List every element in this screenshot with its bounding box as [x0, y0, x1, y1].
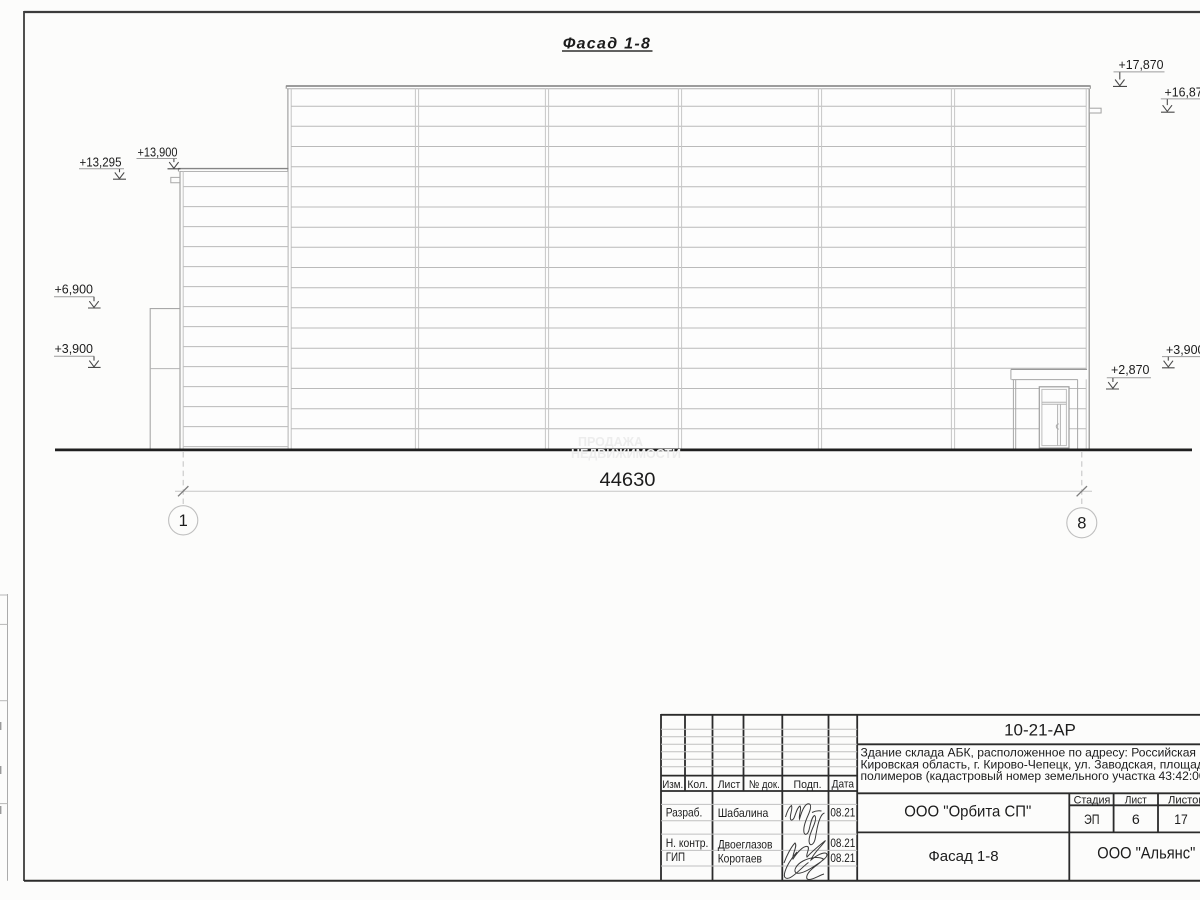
- svg-text:8: 8: [1077, 515, 1086, 533]
- svg-text:НЕДВИЖИМОСТИ: НЕДВИЖИМОСТИ: [571, 447, 681, 461]
- svg-text:44630: 44630: [600, 470, 656, 491]
- svg-text:Шабалина: Шабалина: [718, 807, 769, 820]
- svg-text:+17,870: +17,870: [1119, 57, 1164, 72]
- svg-text:Разраб.: Разраб.: [666, 807, 703, 820]
- svg-text:+13,900: +13,900: [138, 144, 178, 159]
- svg-text:Фасад 1-8: Фасад 1-8: [928, 848, 998, 865]
- svg-text:+2,870: +2,870: [1111, 362, 1150, 377]
- svg-text:08.21: 08.21: [830, 807, 855, 820]
- svg-text:полимеров (кадастровый номер з: полимеров (кадастровый номер земельного …: [861, 769, 1200, 783]
- svg-text:+13,295: +13,295: [80, 154, 122, 169]
- svg-text:+3,900: +3,900: [55, 341, 94, 356]
- svg-text:08.21: 08.21: [830, 837, 855, 850]
- svg-text:+3,900: +3,900: [1166, 342, 1200, 357]
- svg-text:Дата: Дата: [832, 779, 855, 791]
- svg-text:+6,900: +6,900: [55, 282, 94, 297]
- svg-text:ООО "Альянс": ООО "Альянс": [1097, 844, 1195, 863]
- svg-text:Фасад 1-8: Фасад 1-8: [563, 35, 651, 52]
- svg-text:Листов: Листов: [1168, 795, 1200, 807]
- svg-text:№ док.: № док.: [749, 779, 780, 791]
- svg-text:6: 6: [1132, 812, 1140, 828]
- svg-text:Подп.: Подп.: [794, 779, 822, 791]
- svg-text:Кол.: Кол.: [687, 779, 708, 791]
- svg-text:Коротаев: Коротаев: [718, 853, 762, 866]
- svg-text:Лист: Лист: [718, 779, 741, 791]
- svg-text:Двоеглазов: Двоеглазов: [718, 839, 773, 852]
- svg-text:10-21-АР: 10-21-АР: [1004, 721, 1076, 740]
- svg-text:08.21: 08.21: [830, 852, 855, 865]
- svg-text:ООО "Орбита СП": ООО "Орбита СП": [904, 804, 1031, 821]
- svg-text:1: 1: [179, 512, 188, 530]
- svg-text:Лист: Лист: [1125, 795, 1147, 807]
- svg-text:17: 17: [1174, 812, 1188, 828]
- svg-text:Стадия: Стадия: [1074, 795, 1111, 807]
- svg-text:Изм.: Изм.: [662, 779, 683, 791]
- svg-text:ГИП: ГИП: [666, 851, 685, 864]
- svg-text:+16,870: +16,870: [1165, 85, 1200, 100]
- svg-text:Н. контр.: Н. контр.: [666, 837, 709, 850]
- svg-text:ЭП: ЭП: [1084, 812, 1100, 828]
